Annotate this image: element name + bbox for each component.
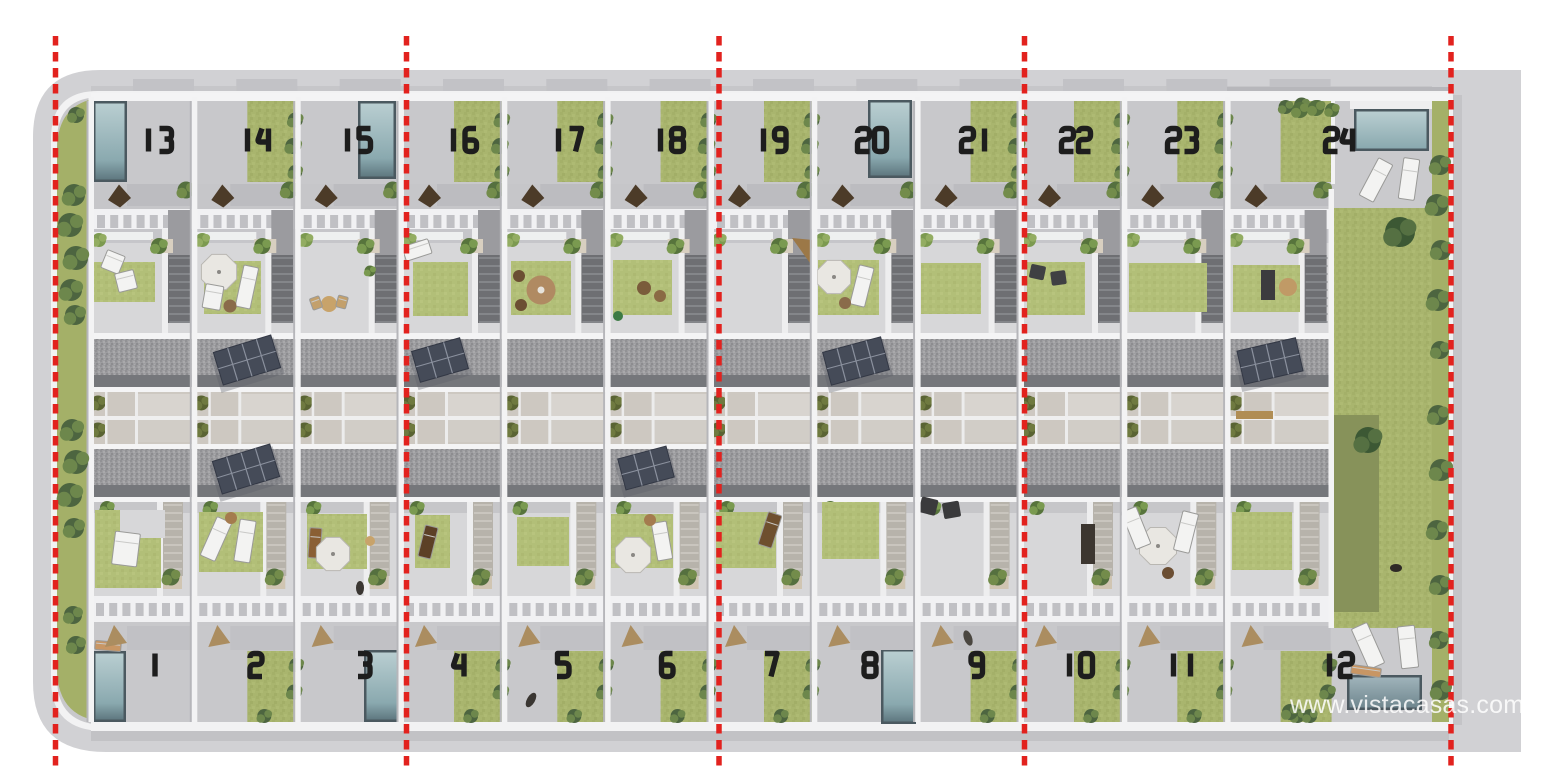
svg-text:www.vistacasas.com: www.vistacasas.com [1289, 691, 1524, 719]
